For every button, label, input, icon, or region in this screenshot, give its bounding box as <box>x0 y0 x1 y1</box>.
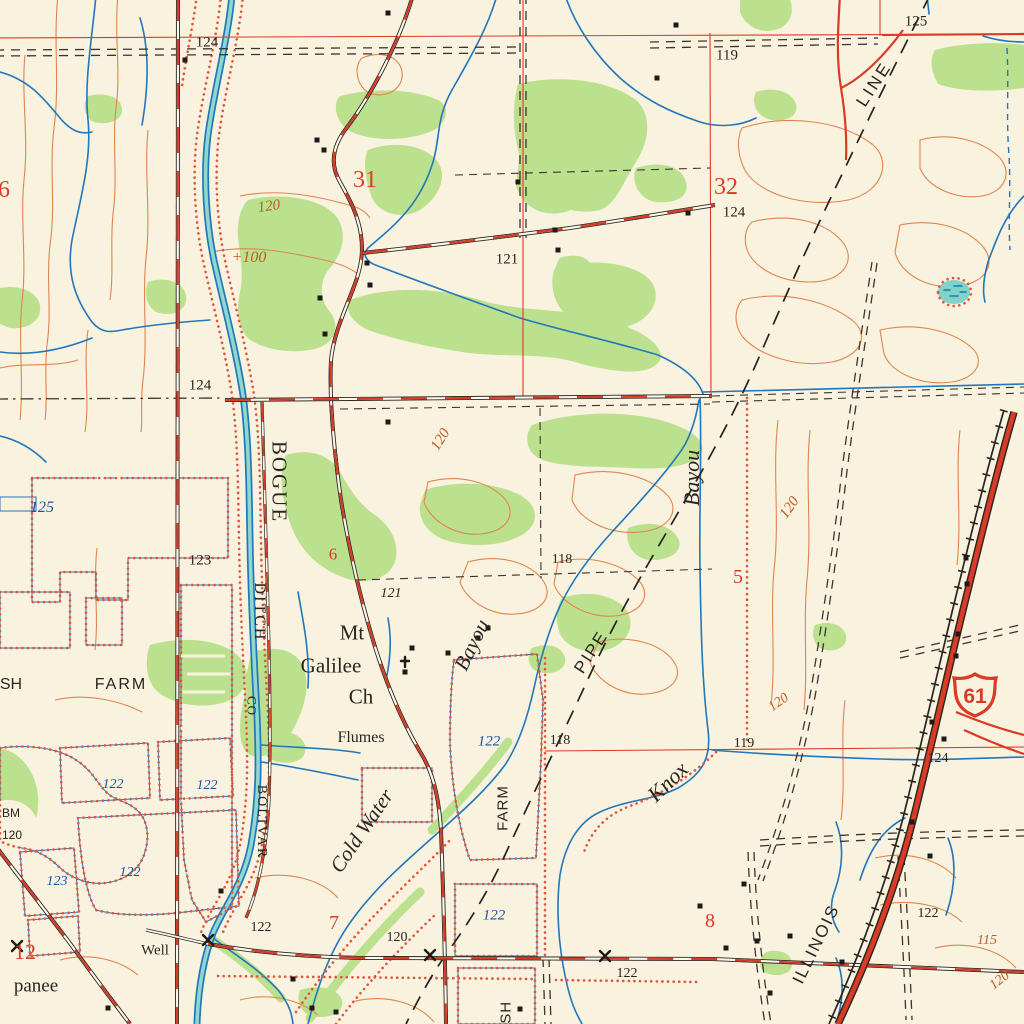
stream-name-label: Knox <box>644 758 693 806</box>
church-name-label: Ch <box>349 687 374 708</box>
railroad-name-label: ILLINOIS <box>790 902 843 987</box>
pipeline-label: PIPE <box>571 628 611 676</box>
section-number-label: 32 <box>714 175 738 199</box>
water-elevation-label: 122 <box>120 866 141 880</box>
contour-label: +100 <box>232 250 267 266</box>
spot-elevation-label: 119 <box>734 737 754 751</box>
water-elevation-label: 122 <box>478 735 501 750</box>
spot-elevation-label: 122 <box>918 907 939 921</box>
benchmark-label: BM <box>2 807 20 819</box>
feature-label: SH <box>0 677 22 693</box>
stream-name-label: Bayou <box>451 616 493 673</box>
water-elevation-label: 122 <box>103 778 124 792</box>
water-elevation-label: 122 <box>483 909 506 924</box>
stream-name-label: Cold Water <box>327 786 398 877</box>
section-number-label: 6 <box>329 546 338 563</box>
contour-label: 120 <box>987 969 1012 993</box>
spot-elevation-label: 121 <box>381 587 402 601</box>
spot-elevation-label: 119 <box>716 49 738 64</box>
spot-elevation-label: 118 <box>552 553 572 567</box>
contour-label: 120 <box>777 494 802 521</box>
stream-name-label: CO <box>246 696 259 716</box>
section-number-label: 6 <box>0 178 10 202</box>
spot-elevation-label: 124 <box>928 752 949 766</box>
feature-label: Flumes <box>337 730 384 746</box>
section-number-label: 8 <box>705 911 715 931</box>
spot-elevation-label: 124 <box>723 206 746 221</box>
place-name-label: panee <box>14 977 58 996</box>
spot-elevation-label: 120 <box>387 931 408 945</box>
spot-elevation-label: 122 <box>617 967 638 981</box>
spot-elevation-label: 118 <box>550 734 570 748</box>
spot-elevation-label: 122 <box>251 921 272 935</box>
feature-label: FARM <box>95 677 147 693</box>
topo-map-canvas: 61 12412511963132124120+100121124120LINE… <box>0 0 1024 1024</box>
spot-elevation-label: 125 <box>905 15 928 30</box>
map-labels-layer: 12412511963132124120+100121124120LINEBOG… <box>0 0 1024 1024</box>
feature-label: Well <box>141 944 169 959</box>
section-number-label: 7 <box>329 913 339 933</box>
stream-name-label: Bayou <box>681 450 703 506</box>
church-name-label: Mt <box>340 623 365 644</box>
contour-label: 120 <box>429 426 454 453</box>
spot-elevation-label: 123 <box>189 554 212 569</box>
water-elevation-label: 123 <box>47 875 68 889</box>
stream-name-label: DITCH <box>251 583 267 642</box>
contour-label: 120 <box>766 691 791 715</box>
spot-elevation-label: 124 <box>189 379 212 394</box>
benchmark-label: 120 <box>2 829 22 841</box>
water-elevation-label: 125 <box>30 500 54 516</box>
stream-name-label: BOGUE <box>269 441 290 523</box>
stream-name-label: BOLIVAR <box>254 785 268 859</box>
pipeline-label: LINE <box>853 58 894 109</box>
feature-label: FARM <box>496 785 511 831</box>
section-number-label: 5 <box>733 567 743 587</box>
section-number-label: 31 <box>353 168 377 192</box>
spot-elevation-label: 124 <box>196 36 219 51</box>
water-elevation-label: 122 <box>197 779 218 793</box>
spot-elevation-label: 121 <box>496 253 519 268</box>
feature-label: FISH <box>499 1001 514 1024</box>
contour-label: 120 <box>257 198 281 216</box>
contour-label: 115 <box>977 934 997 948</box>
section-number-label: 12 <box>14 941 36 963</box>
church-name-label: Galilee <box>301 656 362 677</box>
